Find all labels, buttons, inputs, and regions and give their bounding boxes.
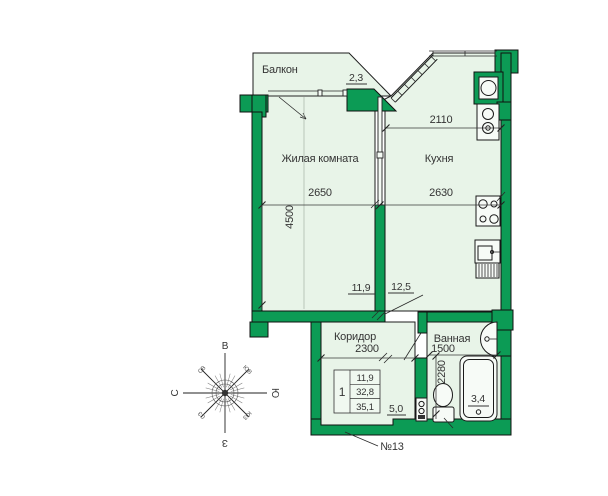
vent-duct-icon xyxy=(477,104,499,140)
bathroom-depth: 2280 xyxy=(436,360,448,384)
floor-plan: Балкон 2,3 Жилая комната 2650 4500 11,9 … xyxy=(0,0,608,496)
drainboard-icon xyxy=(476,263,499,278)
window-mullion xyxy=(318,90,322,96)
corridor-area: 5,0 xyxy=(389,403,403,415)
table-area: 32,8 xyxy=(356,387,374,398)
living-room-label: Жилая комната xyxy=(282,153,360,165)
wall-left xyxy=(252,112,262,322)
compass-bottom: З xyxy=(222,437,228,448)
wall-bathroom-top xyxy=(418,312,502,322)
wall-step-block xyxy=(250,322,268,337)
kitchen-top-width: 2110 xyxy=(430,114,453,126)
living-room-width: 2650 xyxy=(308,187,332,199)
kitchen-area: 12,5 xyxy=(391,281,411,293)
compass-top-right: ЮВ xyxy=(241,365,252,376)
window-mullion xyxy=(343,90,347,96)
living-room-area: 11,9 xyxy=(352,282,371,294)
thin-partition-wall xyxy=(378,97,382,205)
corridor-label: Коридор xyxy=(334,331,376,343)
compass-top: В xyxy=(222,341,229,352)
wall-partition xyxy=(375,205,385,311)
balcony-label: Балкон xyxy=(262,64,298,76)
bathtub-icon xyxy=(460,356,497,421)
vent-shaft-icon xyxy=(479,77,498,99)
table-rooms-count: 1 xyxy=(339,385,346,399)
bathroom-width: 1500 xyxy=(431,343,455,355)
kitchen-label: Кухня xyxy=(425,153,454,165)
living-room-floor xyxy=(262,96,375,311)
wall-corridor-left xyxy=(311,322,321,435)
kitchen-sink-icon xyxy=(475,240,500,263)
compass-rose: В Ю З С СВ ЮВ СЗ ЮЗ xyxy=(170,341,280,448)
balcony-area: 2,3 xyxy=(349,72,363,84)
wall-livingroom-bottom xyxy=(252,311,385,322)
apartment-number: №13 xyxy=(380,441,404,453)
info-table: 1 11,9 32,8 35,1 xyxy=(334,370,380,413)
table-living-area: 11,9 xyxy=(357,373,374,384)
bathroom-area: 3,4 xyxy=(471,393,485,405)
living-room-depth: 4500 xyxy=(284,205,296,229)
compass-right: Ю xyxy=(269,388,280,398)
kitchen-width: 2630 xyxy=(429,187,453,199)
pipe-shaft-icon xyxy=(416,398,427,421)
floor-plan-svg: Балкон 2,3 Жилая комната 2650 4500 11,9 … xyxy=(0,0,608,496)
thin-partition-marker xyxy=(377,152,383,158)
compass-left: С xyxy=(170,389,181,396)
wall-bathroom-top-stub xyxy=(418,312,427,333)
table-total-area: 35,1 xyxy=(356,402,374,413)
compass-center xyxy=(222,390,228,396)
compass-bottom-left: СЗ xyxy=(197,410,207,420)
corridor-width: 2300 xyxy=(355,343,379,355)
